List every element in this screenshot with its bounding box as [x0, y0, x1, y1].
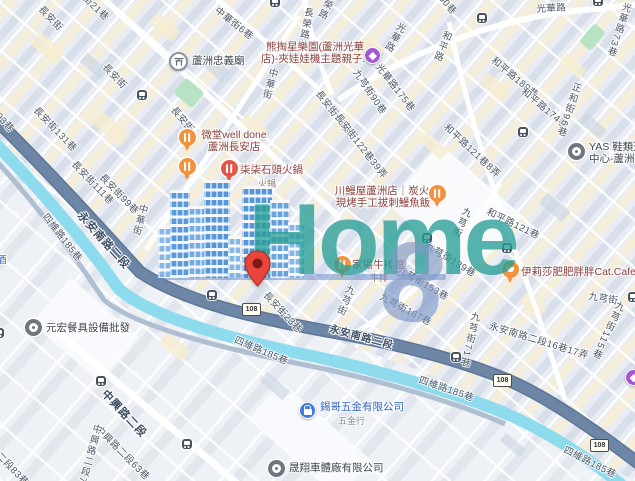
bus-stop-icon[interactable]: [96, 376, 106, 386]
watermark-tower: [170, 190, 190, 278]
shoe-store-icon[interactable]: [568, 143, 585, 160]
street-label-partial: 酒: [0, 252, 7, 266]
poi-sub-hardware: 五金行: [338, 414, 365, 427]
map-canvas[interactable]: 長安街 長安街 長安街 街21巷 長安街193巷 長安街131巷 長安街111巷…: [0, 0, 635, 481]
poi-label-welldone-line1[interactable]: 微堂well done: [197, 129, 271, 141]
route-shield-108: 108: [493, 374, 512, 387]
temple-icon[interactable]: [169, 52, 188, 71]
bus-stop-icon[interactable]: [207, 290, 217, 300]
poi-label-temple[interactable]: 蘆洲忠義廟: [192, 55, 245, 67]
poi-label-hotpot[interactable]: 柒柒石頭火鍋: [240, 164, 303, 176]
bus-stop-icon[interactable]: [0, 328, 4, 338]
poi-label-yas-line2[interactable]: 中心-蘆洲: [589, 153, 635, 165]
poi-label-autobody[interactable]: 晟翔車體廠有限公司: [289, 462, 384, 474]
restaurant-pin-icon[interactable]: [179, 129, 196, 146]
road-zhongxing: [50, 326, 238, 481]
hotpot-pin-icon[interactable]: [221, 160, 238, 177]
poi-label-welldone-line2[interactable]: 蘆洲長安店: [197, 141, 271, 153]
poi-label-yas-line1[interactable]: YAS 鞋類選: [589, 141, 635, 153]
bus-stop-icon[interactable]: [593, 0, 603, 6]
poi-label-claw-line1[interactable]: 熊掏星樂園(蘆洲光華: [260, 41, 370, 53]
bus-stop-icon[interactable]: [451, 352, 461, 362]
route-shield-108: 108: [242, 303, 261, 316]
bus-stop-icon[interactable]: [518, 127, 528, 137]
bus-stop-icon[interactable]: [628, 292, 635, 302]
hardware-store-icon[interactable]: [299, 402, 316, 419]
claw-machine-store-icon[interactable]: [364, 47, 381, 64]
location-pin[interactable]: [244, 250, 271, 287]
bus-stop-icon[interactable]: [477, 13, 487, 23]
route-shield-108: 108: [590, 439, 609, 452]
poi-label-catcafe[interactable]: 伊莉莎肥肥胖胖Cat.Cafe: [521, 266, 635, 278]
torii-glyph: [174, 57, 184, 67]
bus-stop-icon[interactable]: [137, 90, 147, 100]
tableware-store-icon[interactable]: [25, 319, 42, 336]
poi-label-tableware[interactable]: 元宏餐具設備批發: [46, 322, 130, 334]
poi-label-claw-line2[interactable]: 店)-夾娃娃機主題親子...: [258, 53, 374, 65]
poi-label-hardware[interactable]: 錫哥五金有限公司: [320, 401, 404, 413]
amusement-icon-partial[interactable]: [625, 369, 635, 386]
restaurant-pin-icon[interactable]: [179, 158, 196, 175]
watermark-tower: [204, 180, 230, 278]
bus-stop-icon[interactable]: [182, 439, 192, 449]
bus-stop-icon[interactable]: [270, 0, 280, 7]
watermark-tower: [188, 206, 204, 278]
street-label-guanghua: 光華路: [536, 0, 567, 15]
watermark-tower: [228, 236, 240, 278]
autobody-shop-icon[interactable]: [268, 460, 285, 477]
